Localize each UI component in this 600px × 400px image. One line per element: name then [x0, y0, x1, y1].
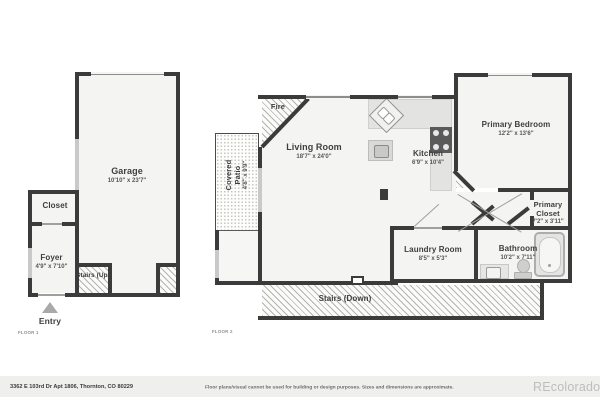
burner	[443, 130, 449, 136]
burner	[433, 130, 439, 136]
patio-divider	[219, 230, 258, 231]
laundry-door-opening	[414, 227, 442, 229]
entry-door-opening	[38, 294, 65, 296]
wall	[75, 72, 79, 139]
room-dims: 4'8" x 9'9"	[243, 140, 250, 210]
wall	[75, 263, 112, 267]
wall	[498, 188, 572, 192]
room-name: Stairs (Up)	[74, 272, 112, 280]
wall	[156, 267, 160, 297]
room-label-covered-patio: Covered Patio 4'8" x 9'9"	[224, 140, 250, 210]
room-label-bathroom: Bathroom 10'2" x 7'11"	[488, 244, 548, 262]
window-line	[398, 96, 432, 98]
floorplan-image: Garage 10'10" x 23'7" Closet Foyer 4'9" …	[0, 0, 600, 400]
room-label-stairs-up: Stairs (Up)	[74, 272, 112, 280]
room-name: Garage	[77, 166, 177, 177]
window-line	[306, 96, 350, 98]
room-label-kitchen: Kitchen 6'9" x 10'4"	[398, 149, 458, 167]
wall	[568, 73, 572, 283]
wall	[258, 316, 544, 320]
room-label-stairs-down: Stairs (Down)	[290, 294, 400, 304]
room-dims: 10'10" x 23'7"	[77, 178, 177, 185]
wall	[28, 222, 42, 226]
room-label-closet: Closet	[30, 201, 80, 211]
wall	[390, 279, 572, 283]
room-label-primary-closet: Primary Closet 7'2" x 3'11"	[524, 200, 572, 226]
room-label-laundry-room: Laundry Room 8'5" x 5'3"	[398, 245, 468, 263]
room-label-foyer: Foyer 4'9" x 7'10"	[28, 253, 75, 271]
window-line	[488, 75, 532, 77]
patio-slider-door	[258, 168, 262, 212]
room-name: Stairs (Down)	[290, 294, 400, 304]
room-name: Fire	[263, 102, 293, 111]
wall	[258, 281, 398, 285]
closet-door-opening	[42, 223, 62, 225]
disclaimer-text: Floor plans/visual cannot be used for bu…	[205, 385, 454, 390]
room-name: Primary Closet	[531, 200, 565, 218]
window-line	[91, 74, 164, 76]
wall-stub	[380, 189, 388, 200]
floor1-caption: FLOOR 1	[18, 330, 39, 335]
room-dims: 18'7" x 24'0"	[264, 154, 364, 161]
wall	[65, 293, 180, 297]
room-name: Entry	[28, 316, 72, 326]
wall	[390, 230, 394, 279]
entry-label: Entry	[28, 316, 72, 326]
room-label-garage: Garage 10'10" x 23'7"	[77, 166, 177, 185]
wall	[540, 281, 544, 320]
kitchen-island	[368, 140, 393, 161]
fire-label: Fire	[263, 102, 293, 111]
floor2-caption: FLOOR 2	[212, 329, 233, 334]
wall	[28, 190, 79, 194]
room-label-living-room: Living Room 18'7" x 24'0"	[264, 142, 364, 161]
room-name: Foyer	[28, 253, 75, 263]
room-name: Closet	[30, 201, 80, 211]
stairs-landing-hatch	[160, 267, 176, 293]
property-address: 3362 E 103rd Dr Apt 1806, Thornton, CO 8…	[10, 384, 133, 390]
room-name: Bathroom	[488, 244, 548, 254]
patio-storage-floor	[219, 231, 258, 281]
wall	[530, 192, 534, 200]
entry-arrow-icon	[42, 302, 58, 313]
stair-landing-notch	[351, 276, 364, 285]
room-name: Covered Patio	[224, 155, 242, 195]
room-dims: 10'2" x 7'11"	[488, 255, 548, 262]
room-name: Living Room	[264, 142, 364, 153]
room-dims: 4'9" x 7'10"	[28, 264, 75, 271]
wall	[474, 230, 478, 279]
toilet-tank	[514, 272, 532, 279]
wall	[215, 281, 262, 285]
stairs-up-hatch	[79, 267, 108, 293]
room-dims: 8'5" x 5'3"	[398, 256, 468, 263]
bathtub-drain	[548, 264, 551, 267]
room-dims: 12'2" x 13'6"	[456, 131, 576, 138]
window	[215, 250, 219, 278]
recolorado-logo: REcolorado	[533, 380, 600, 394]
room-dims: 6'9" x 10'4"	[398, 160, 458, 167]
room-label-primary-bedroom: Primary Bedroom 12'2" x 13'6"	[456, 120, 576, 138]
vanity-sink	[486, 267, 501, 279]
room-dims: 7'2" x 3'11"	[524, 219, 572, 226]
room-name: Primary Bedroom	[456, 120, 576, 130]
island-sink	[374, 145, 389, 158]
wall	[474, 226, 572, 230]
room-name: Kitchen	[398, 149, 458, 159]
vanity	[480, 264, 509, 279]
room-name: Laundry Room	[398, 245, 468, 255]
